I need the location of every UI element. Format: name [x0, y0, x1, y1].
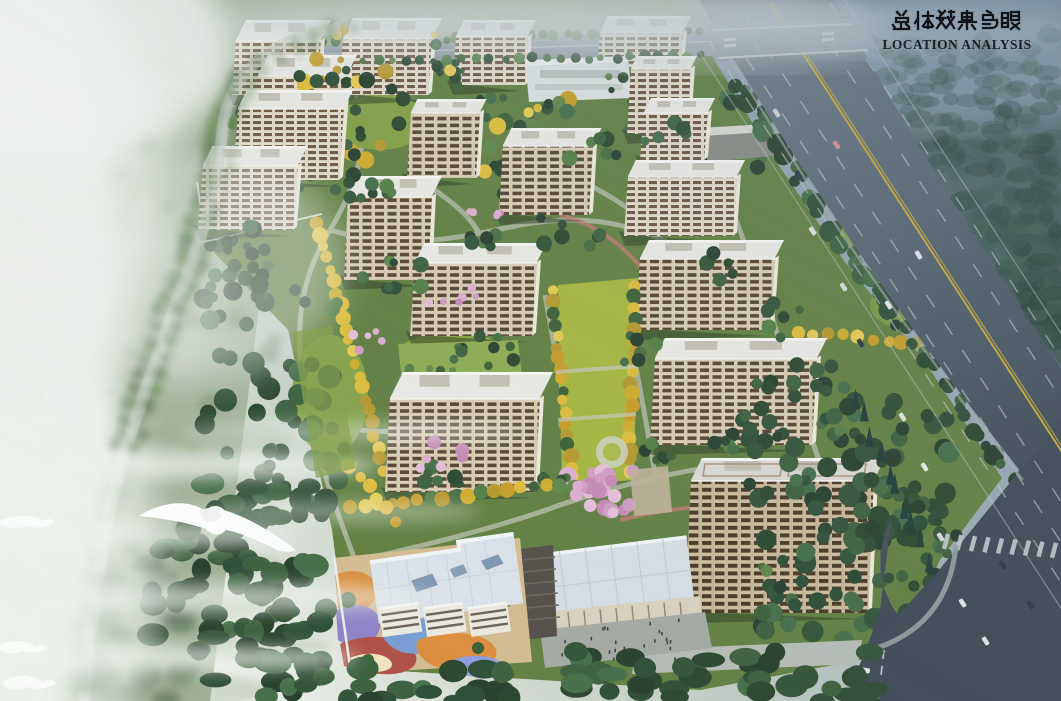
svg-text:LOCATION ANALYSIS: LOCATION ANALYSIS [883, 37, 1032, 52]
